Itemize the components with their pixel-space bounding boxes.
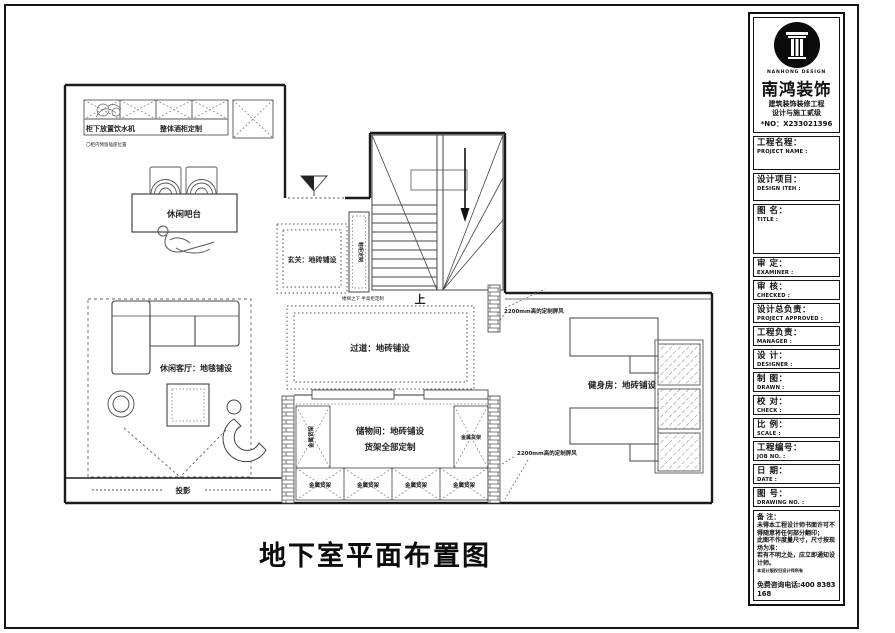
stair-arrow bbox=[461, 148, 470, 222]
square-table bbox=[167, 384, 209, 426]
brand-line2: 设计与施工贰级 bbox=[772, 109, 821, 118]
field-label-zh: 设 计： bbox=[757, 351, 836, 362]
stairs bbox=[372, 135, 503, 290]
field-designer: 设 计： DESIGNER : bbox=[753, 349, 840, 369]
field-label-zh: 比 例： bbox=[757, 420, 836, 431]
field-label-en: CHECKED : bbox=[757, 293, 836, 299]
field-project-approved: 设计总负责： PROJECT APPROVED : bbox=[753, 303, 840, 323]
label-shelf-b3: 金属货架 bbox=[404, 481, 428, 489]
field-label-zh: 工程名程： bbox=[757, 138, 836, 149]
under-stair-note: 楼梯之下 半高柜定制 bbox=[342, 295, 384, 302]
note-line-3: 若有不明之处，应立即通知设计师。 bbox=[757, 552, 836, 567]
field-label-en: DESIGNER : bbox=[757, 362, 836, 368]
field-drawing-no: 图 号： DRAWING NO. : bbox=[753, 487, 840, 507]
label-cabinet-note: 柜下放置饮水机 bbox=[85, 124, 135, 133]
floor-plan: 柜下放置饮水机 整体酒柜定制 〇柜内预留插座位置 休闲吧台 玄关：地砖铺设 鞋柜… bbox=[0, 0, 745, 525]
note-tiny: 本设计版权归设计师所有 bbox=[757, 568, 836, 574]
field-label-zh: 审 定： bbox=[757, 259, 836, 270]
label-storage-2: 货架全部定制 bbox=[363, 442, 416, 453]
field-label-en: MANAGER : bbox=[757, 339, 836, 345]
label-living: 休闲客厅：地毯铺设 bbox=[159, 363, 232, 373]
field-design-item: 设计项目： DESIGN ITEH : bbox=[753, 173, 840, 201]
bar-chairs bbox=[150, 167, 217, 194]
note-line-1: 未得本工程设计师书面许可不得随意将任何部分翻印； bbox=[757, 522, 836, 537]
field-label-en: PROJECT APPROVED : bbox=[757, 316, 836, 322]
label-corridor: 过道：地砖铺设 bbox=[350, 343, 410, 354]
field-label-zh: 日 期： bbox=[757, 466, 836, 477]
field-label-zh: 设计总负责： bbox=[757, 305, 836, 316]
field-label-en: CHECK : bbox=[757, 408, 836, 414]
note-line-2: 此图不作度量尺寸，尺寸按现场为准： bbox=[757, 537, 836, 552]
field-label-zh: 工程负责： bbox=[757, 328, 836, 339]
label-shelf-right: 金属货架 bbox=[460, 434, 481, 441]
outer-walls bbox=[65, 85, 712, 503]
field-label-en: DRAWING NO. : bbox=[757, 500, 836, 506]
field-drawn: 制 图： DRAWN : bbox=[753, 372, 840, 392]
label-cabinet-custom: 整体酒柜定制 bbox=[159, 124, 202, 133]
field-label-en: TITLE : bbox=[757, 217, 836, 223]
field-label-zh: 工程编号： bbox=[757, 443, 836, 454]
brand-name-zh: 南鸿装饰 bbox=[762, 76, 832, 100]
field-label-zh: 校 对： bbox=[757, 397, 836, 408]
field-check: 校 对： CHECK : bbox=[753, 395, 840, 415]
field-label-zh: 制 图： bbox=[757, 374, 836, 385]
round-table bbox=[108, 391, 134, 417]
screen-leaders bbox=[500, 289, 545, 499]
notes-section: 备 注： 未得本工程设计师书面许可不得随意将任何部分翻印； 此图不作度量尺寸，尺… bbox=[753, 510, 840, 601]
label-bar-table: 休闲吧台 bbox=[166, 209, 202, 220]
field-label-en: SCALE : bbox=[757, 431, 836, 437]
hotline-phone: 免费咨询电话:400 8383 168 bbox=[757, 580, 836, 599]
label-entry: 玄关：地砖铺设 bbox=[288, 255, 338, 264]
field-scale: 比 例： SCALE : bbox=[753, 418, 840, 438]
cabinet-sketch bbox=[96, 104, 121, 117]
field-label-zh: 图 名： bbox=[757, 206, 836, 217]
field-label-zh: 图 号： bbox=[757, 489, 836, 500]
label-storage-1: 储物间：地砖铺设 bbox=[355, 426, 425, 437]
label-shelf-b4: 金属货架 bbox=[452, 481, 476, 489]
field-manager: 工程负责： MANAGER : bbox=[753, 326, 840, 346]
label-stairs-up: 上 bbox=[415, 292, 426, 306]
brand-line1: 建筑装饰装修工程 bbox=[769, 100, 825, 109]
label-screen-top: 2200mm高的定制屏风 bbox=[504, 307, 564, 315]
label-gym: 健身房：地砖铺设 bbox=[588, 380, 657, 391]
label-shelf-b2: 金属货架 bbox=[356, 481, 380, 489]
tiny-note: 〇柜内预留插座位置 bbox=[86, 141, 127, 148]
field-examiner: 审 定： EXAMINER : bbox=[753, 257, 840, 277]
field-job-no: 工程编号： JOB NO. : bbox=[753, 441, 840, 461]
brand-name-en: NANHONG DESIGN bbox=[767, 70, 826, 75]
field-label-en: DATE : bbox=[757, 477, 836, 483]
projector-cone bbox=[124, 428, 226, 477]
gym-mats bbox=[655, 340, 703, 473]
title-block: NANHONG DESIGN 南鸿装饰 建筑装饰装修工程 设计与施工贰级 *NO… bbox=[748, 12, 845, 606]
drawing-title: 地下室平面布置图 bbox=[175, 534, 575, 573]
field-title: 图 名： TITLE : bbox=[753, 204, 840, 254]
field-label-zh: 审 核： bbox=[757, 282, 836, 293]
field-label-en: EXAMINER : bbox=[757, 270, 836, 276]
field-label-en: DESIGN ITEH : bbox=[757, 186, 836, 192]
field-label-en: PROJECT NAME : bbox=[757, 149, 836, 155]
drawing-sheet: 柜下放置饮水机 整体酒柜定制 〇柜内预留插座位置 休闲吧台 玄关：地砖铺设 鞋柜… bbox=[0, 0, 895, 633]
field-checked: 审 核： CHECKED : bbox=[753, 280, 840, 300]
label-shoe-cabinet: 鞋柜定制 bbox=[357, 242, 364, 262]
field-label-zh: 设计项目： bbox=[757, 175, 836, 186]
section-symbol bbox=[301, 176, 327, 196]
logo-section: NANHONG DESIGN 南鸿装饰 建筑装饰装修工程 设计与施工贰级 *NO… bbox=[753, 17, 840, 133]
field-label-en: JOB NO. : bbox=[757, 454, 836, 460]
brand-license-no: *NO：X233021396 bbox=[761, 119, 833, 129]
label-projection: 投影 bbox=[176, 485, 191, 495]
field-date: 日 期： DATE : bbox=[753, 464, 840, 484]
curved-chair bbox=[223, 400, 266, 462]
field-project-name: 工程名程： PROJECT NAME : bbox=[753, 136, 840, 170]
label-screen-bottom: 2200mm高的定制屏风 bbox=[517, 449, 577, 457]
notes-title: 备 注： bbox=[757, 512, 836, 522]
column-icon bbox=[783, 30, 811, 60]
label-shelf-b1: 金属货架 bbox=[308, 481, 332, 489]
label-shelf-left: 金属货架 bbox=[307, 426, 315, 450]
company-logo-icon bbox=[774, 22, 820, 68]
field-label-en: DRAWN : bbox=[757, 385, 836, 391]
